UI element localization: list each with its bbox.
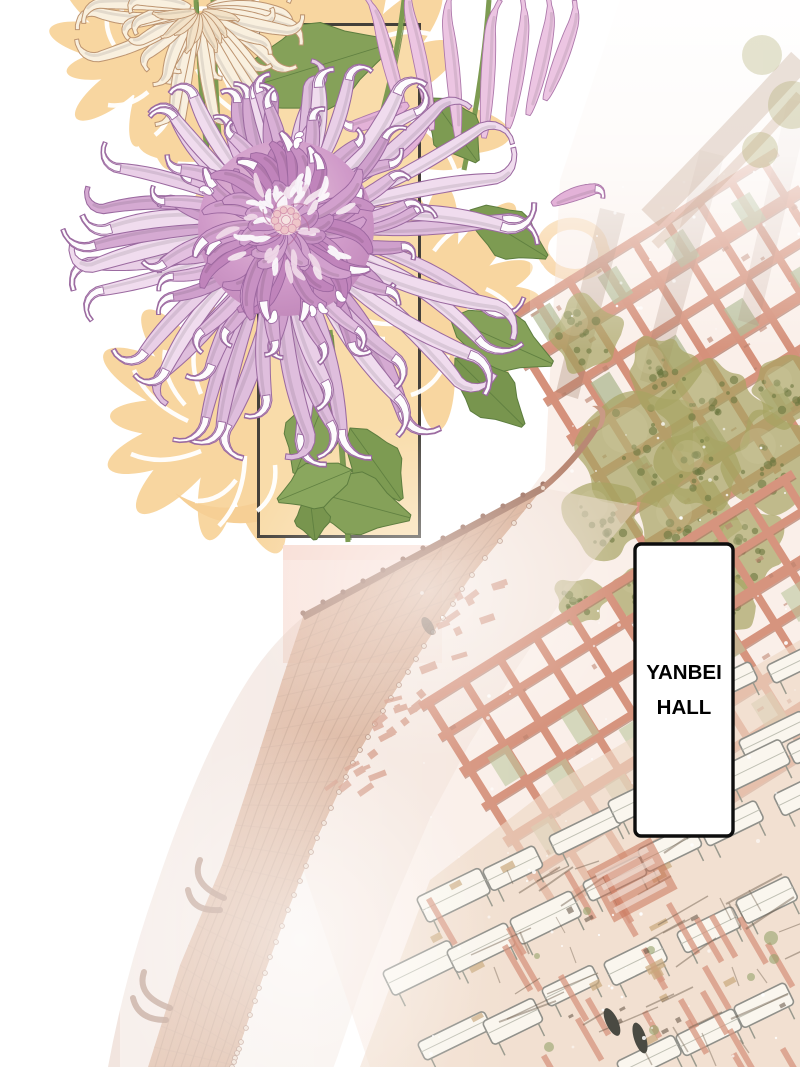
svg-text:YANBEI: YANBEI	[646, 661, 722, 684]
svg-text:HALL: HALL	[657, 696, 712, 719]
